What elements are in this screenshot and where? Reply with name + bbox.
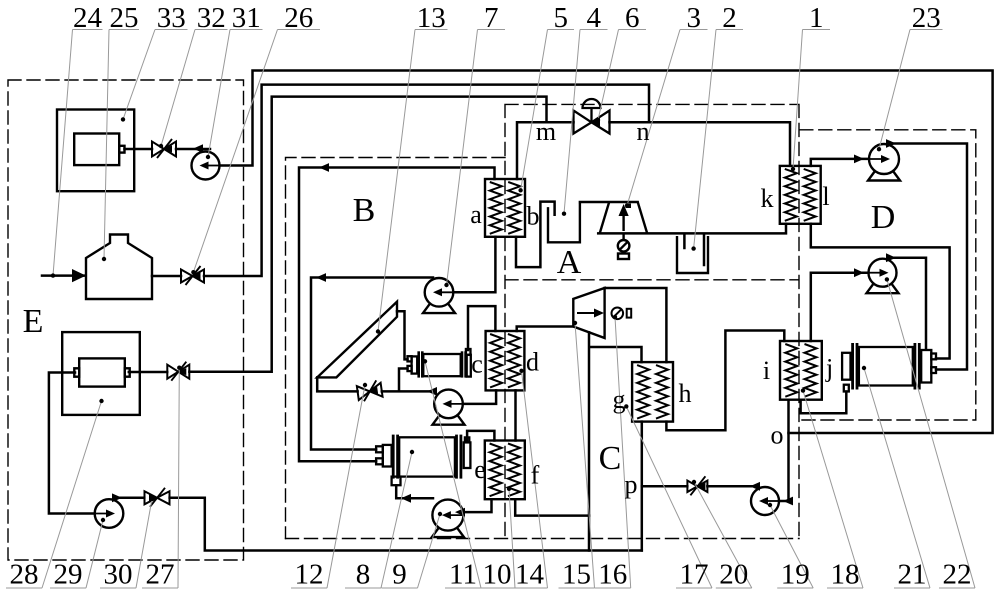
- svg-text:D: D: [871, 199, 896, 236]
- svg-text:29: 29: [54, 559, 83, 591]
- svg-text:a: a: [470, 200, 482, 229]
- svg-text:15: 15: [562, 559, 591, 591]
- svg-text:8: 8: [356, 559, 371, 591]
- svg-text:28: 28: [10, 559, 39, 591]
- svg-text:10: 10: [483, 559, 512, 591]
- svg-text:A: A: [557, 244, 582, 281]
- svg-text:o: o: [771, 421, 784, 450]
- svg-text:l: l: [822, 182, 829, 211]
- svg-text:17: 17: [680, 559, 709, 591]
- svg-text:e: e: [474, 455, 486, 484]
- svg-text:b: b: [527, 202, 540, 231]
- svg-text:7: 7: [484, 2, 499, 34]
- svg-text:20: 20: [719, 559, 748, 591]
- svg-text:14: 14: [515, 559, 545, 591]
- svg-text:23: 23: [912, 2, 941, 34]
- svg-text:f: f: [531, 461, 540, 490]
- svg-text:6: 6: [625, 2, 640, 34]
- svg-text:22: 22: [943, 559, 972, 591]
- svg-text:g: g: [613, 385, 626, 414]
- svg-text:27: 27: [146, 559, 175, 591]
- svg-text:c: c: [471, 350, 483, 379]
- svg-text:d: d: [526, 348, 539, 377]
- svg-text:i: i: [763, 356, 770, 385]
- svg-text:30: 30: [104, 559, 133, 591]
- svg-text:31: 31: [232, 2, 261, 34]
- svg-text:C: C: [599, 440, 622, 477]
- svg-text:25: 25: [110, 2, 139, 34]
- svg-text:m: m: [536, 117, 556, 146]
- svg-text:26: 26: [284, 2, 313, 34]
- svg-text:13: 13: [417, 2, 446, 34]
- svg-text:16: 16: [598, 559, 627, 591]
- svg-text:3: 3: [687, 2, 702, 34]
- svg-text:5: 5: [554, 2, 569, 34]
- svg-text:19: 19: [781, 559, 810, 591]
- svg-text:2: 2: [722, 2, 737, 34]
- svg-text:24: 24: [73, 2, 103, 34]
- svg-text:9: 9: [392, 559, 407, 591]
- svg-text:12: 12: [295, 559, 324, 591]
- svg-text:33: 33: [157, 2, 186, 34]
- svg-text:4: 4: [587, 2, 602, 34]
- svg-text:11: 11: [449, 559, 477, 591]
- svg-text:18: 18: [831, 559, 860, 591]
- svg-text:E: E: [23, 303, 44, 340]
- svg-text:B: B: [353, 192, 376, 229]
- svg-text:k: k: [761, 184, 774, 213]
- svg-text:21: 21: [898, 559, 927, 591]
- svg-text:n: n: [637, 117, 650, 146]
- svg-text:32: 32: [197, 2, 226, 34]
- svg-text:j: j: [825, 354, 833, 383]
- svg-text:p: p: [625, 470, 638, 499]
- svg-text:h: h: [679, 379, 692, 408]
- svg-text:1: 1: [809, 2, 824, 34]
